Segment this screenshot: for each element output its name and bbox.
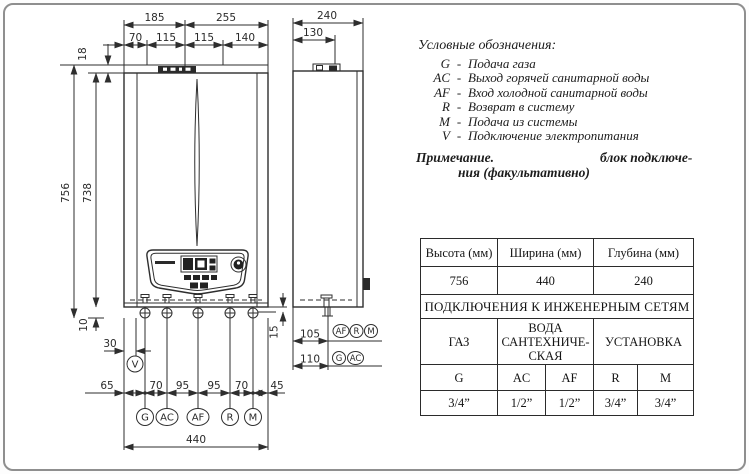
section-title: ПОДКЛЮЧЕНИЯ К ИНЖЕНЕРНЫМ СЕТЯМ [421, 295, 694, 319]
conn-size-m: 3/4” [638, 391, 694, 416]
note-text-line1: блок подключе- [600, 150, 692, 166]
port-r: R [227, 413, 234, 424]
dim-115-b: 115 [194, 32, 214, 44]
side-port-r: R [354, 327, 360, 337]
legend-separator: - [450, 71, 468, 85]
group-install: УСТАНОВКА [594, 319, 694, 365]
legend-item-r: R - Возврат в систему [418, 100, 744, 114]
group-water: ВОДА САНТЕХНИЧЕ­СКАЯ [498, 319, 594, 365]
dim-115-a: 115 [156, 32, 176, 44]
dim-70-top: 70 [129, 32, 142, 44]
control-panel [147, 250, 248, 294]
side-view: 240 130 105 110 AF R M G AC [293, 10, 382, 370]
side-port-labels: AF R M G AC [333, 325, 378, 365]
dim-440: 440 [186, 434, 206, 446]
legend-desc: Возврат в систему [468, 100, 744, 114]
legend-desc: Подача из системы [468, 115, 744, 129]
flue-connector [158, 66, 196, 73]
legend-key: V [418, 129, 450, 143]
conn-label-r: R [594, 365, 638, 391]
side-port-af: AF [336, 327, 347, 337]
header-depth: Глубина (мм) [594, 239, 694, 267]
conn-label-af: AF [546, 365, 594, 391]
port-m: M [249, 413, 258, 424]
power-label: V [132, 360, 139, 371]
group-header-row: ГАЗ ВОДА САНТЕХНИЧЕ­СКАЯ УСТАНОВКА [421, 319, 694, 365]
size-value-row: 756 440 240 [421, 267, 694, 295]
dim-756: 756 [60, 183, 72, 203]
header-width: Ширина (мм) [498, 239, 594, 267]
casing-seam [195, 79, 200, 246]
dim-15: 15 [269, 325, 281, 338]
legend-item-af: AF - Вход холодной санитарной воды [418, 86, 744, 100]
conn-label-m: M [638, 365, 694, 391]
legend-desc: Подключение электропитания [468, 129, 744, 143]
side-port-g: G [336, 354, 343, 364]
legend-item-m: M - Подача из системы [418, 115, 744, 129]
dim-65: 65 [100, 380, 113, 392]
technical-drawing: 185 255 70 115 115 140 18 756 738 10 15 … [0, 0, 420, 474]
dim-738: 738 [82, 183, 94, 203]
legend-key: AC [418, 71, 450, 85]
legend-title: Условные обозначения: [418, 38, 744, 54]
legend-separator: - [450, 100, 468, 114]
value-height: 756 [421, 267, 498, 295]
front-view: 185 255 70 115 115 140 18 756 738 10 15 … [60, 12, 287, 450]
header-height: Высота (мм) [421, 239, 498, 267]
conn-label-row: G AC AF R M [421, 365, 694, 391]
side-port-m: M [367, 327, 374, 337]
legend-key: M [418, 115, 450, 129]
front-port-labels: G AC AF R M [137, 409, 262, 426]
legend-item-v: V - Подключение электропитания [418, 129, 744, 143]
legend-note: Примечание. блок подключе- ния (факульта… [418, 150, 744, 182]
dim-240: 240 [317, 10, 337, 22]
legend-separator: - [450, 57, 468, 71]
port-g: G [141, 413, 149, 424]
dim-18: 18 [77, 47, 89, 60]
note-label: Примечание. [416, 150, 494, 166]
port-af: AF [192, 413, 205, 424]
dim-95-b: 95 [207, 380, 220, 392]
dim-255: 255 [216, 12, 236, 24]
conn-size-row: 3/4” 1/2” 1/2” 3/4” 3/4” [421, 391, 694, 416]
port-symbols [140, 308, 258, 318]
dim-130: 130 [303, 27, 323, 39]
power-connection: V [127, 356, 143, 372]
dim-140: 140 [235, 32, 255, 44]
size-header-row: Высота (мм) Ширина (мм) Глубина (мм) [421, 239, 694, 267]
legend-item-g: G - Подача газа [418, 57, 744, 71]
dim-105: 105 [300, 329, 320, 341]
dim-70-bot-a: 70 [149, 380, 162, 392]
side-port-ac: AC [350, 354, 362, 364]
legend-key: AF [418, 86, 450, 100]
legend-separator: - [450, 115, 468, 129]
conn-size-g: 3/4” [421, 391, 498, 416]
legend-separator: - [450, 86, 468, 100]
conn-size-ac: 1/2” [498, 391, 546, 416]
legend-desc: Подача газа [468, 57, 744, 71]
dim-30: 30 [103, 338, 116, 350]
legend-key: G [418, 57, 450, 71]
legend-item-ac: AC - Выход горячей санитарной воды [418, 71, 744, 85]
back-connector [363, 278, 370, 290]
dim-110: 110 [300, 354, 320, 366]
group-gas: ГАЗ [421, 319, 498, 365]
conn-size-af: 1/2” [546, 391, 594, 416]
dim-10: 10 [78, 318, 90, 331]
conn-label-ac: AC [498, 365, 546, 391]
legend-desc: Вход холодной санитарной воды [468, 86, 744, 100]
note-text-line2: ния (факультативно) [458, 165, 590, 181]
spec-table: Высота (мм) Ширина (мм) Глубина (мм) 756… [420, 238, 694, 416]
conn-label-g: G [421, 365, 498, 391]
dim-45: 45 [270, 380, 283, 392]
section-title-row: ПОДКЛЮЧЕНИЯ К ИНЖЕНЕРНЫМ СЕТЯМ [421, 295, 694, 319]
dim-185: 185 [144, 12, 164, 24]
port-ac: AC [160, 413, 174, 424]
dim-95-a: 95 [176, 380, 189, 392]
conn-size-r: 3/4” [594, 391, 638, 416]
value-depth: 240 [594, 267, 694, 295]
legend-separator: - [450, 129, 468, 143]
dim-70-bot-b: 70 [235, 380, 248, 392]
legend: Условные обозначения: G - Подача газа AC… [418, 38, 744, 182]
legend-key: R [418, 100, 450, 114]
value-width: 440 [498, 267, 594, 295]
legend-desc: Выход горячей санитарной воды [468, 71, 744, 85]
